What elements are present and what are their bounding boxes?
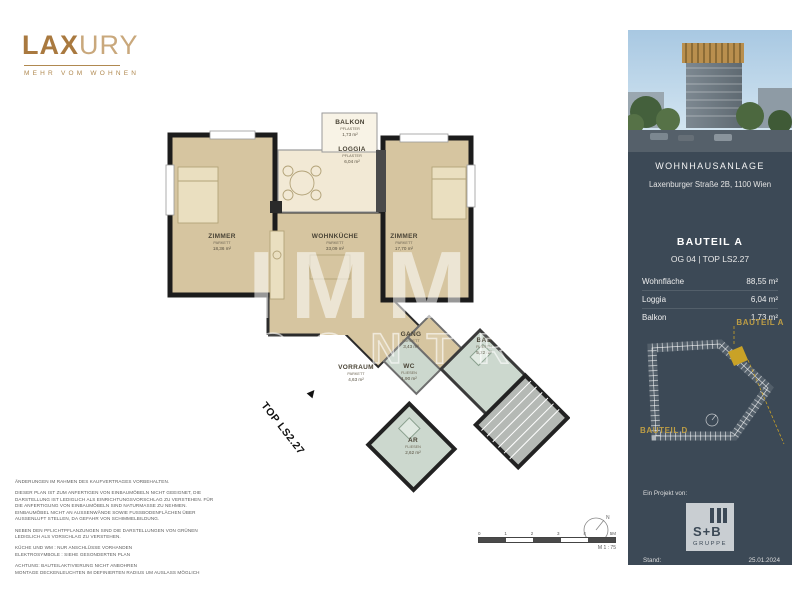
laxury-logo: LAXURY MEHR VOM WOHNEN	[22, 32, 139, 77]
disclaimer-p1: ÄNDERUNGEN IM RAHMEN DES KAUFVERTRAGES V…	[15, 479, 220, 485]
disclaimer-block: ÄNDERUNGEN IM RAHMEN DES KAUFVERTRAGES V…	[15, 479, 220, 581]
metric-row-wohnflaeche: Wohnfläche 88,55 m²	[642, 273, 778, 291]
stand-label: Stand:	[643, 557, 661, 564]
siteplan-label-bauteil-d: BAUTEIL D	[640, 426, 688, 435]
scale-ratio-label: M 1 : 75	[478, 545, 616, 551]
room-wohnkueche-shape	[268, 212, 382, 335]
scale-bar-segments	[478, 537, 616, 543]
stand-date: 25.01.2024	[748, 557, 780, 564]
building-photo	[628, 30, 792, 152]
room-ar-shape	[368, 404, 454, 490]
sb-gruppe-logo: S+B GRUPPE	[686, 503, 734, 551]
wall-pillar	[270, 201, 282, 213]
logo-ury: URY	[79, 30, 139, 60]
project-title: WOHNHAUSANLAGE	[628, 161, 792, 171]
disclaimer-p2: DIESER PLAN IST ZUM ANFERTIGEN VON EINBA…	[15, 490, 220, 522]
scale-bar: 0 1 2 3 4 5M M 1 : 75	[478, 531, 616, 551]
wall-mass	[376, 150, 386, 212]
floor-plan-drawing	[150, 105, 570, 500]
project-by-label: Ein Projekt von:	[643, 490, 687, 497]
disclaimer-p3: NEBEN DEN PFLICHTPFLANZUNGEN SIND DIE DA…	[15, 528, 220, 541]
scale-ticks: 0 1 2 3 4 5M	[478, 531, 616, 536]
logo-divider	[24, 65, 120, 66]
svg-text:N: N	[606, 515, 610, 521]
disclaimer-p5: ACHTUNG: BAUTEILAKTIVIERUNG NICHT ANBOHR…	[15, 563, 220, 576]
room-loggia-shape	[278, 150, 378, 212]
stand-row: Stand: 25.01.2024	[643, 557, 780, 564]
project-address: Laxenburger Straße 2B, 1100 Wien	[628, 180, 792, 189]
logo-tagline: MEHR VOM WOHNEN	[24, 70, 139, 77]
unit-floor-top: OG 04 | TOP LS2.27	[628, 254, 792, 264]
sb-logo-subtext: GRUPPE	[693, 541, 727, 547]
metric-row-loggia: Loggia 6,04 m²	[642, 291, 778, 309]
info-sidebar: WOHNHAUSANLAGE Laxenburger Straße 2B, 11…	[628, 30, 792, 565]
sb-logo-text: S+B	[693, 524, 722, 539]
disclaimer-p4: KÜCHE UND WM : NUR ANSCHLÜSSE VORHANDEN …	[15, 545, 220, 558]
brochure-page: LAXURY MEHR VOM WOHNEN	[0, 0, 800, 600]
sb-logo-bars-icon	[710, 508, 727, 523]
room-balkon-shape	[322, 113, 377, 152]
logo-wordmark: LAXURY	[22, 32, 139, 59]
logo-lax: LAX	[22, 30, 79, 60]
bauteil-heading: BAUTEIL A	[628, 236, 792, 248]
